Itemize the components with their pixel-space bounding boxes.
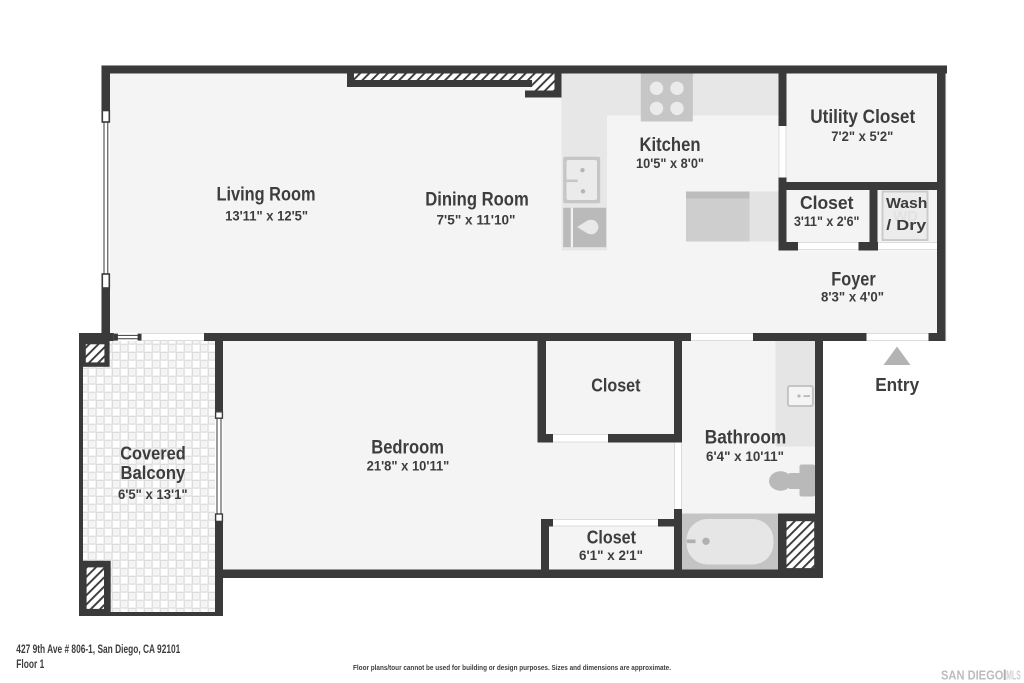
svg-text:Wash: Wash bbox=[886, 195, 927, 212]
svg-text:Floor 1: Floor 1 bbox=[16, 659, 44, 671]
svg-text:Closet: Closet bbox=[591, 376, 640, 396]
svg-text:SAN DIEGO: SAN DIEGO bbox=[941, 669, 1004, 683]
svg-text:427 9th Ave # 806-1, San Diego: 427 9th Ave # 806-1, San Diego, CA 92101 bbox=[16, 644, 180, 656]
svg-text:/ Dry: / Dry bbox=[886, 217, 927, 234]
svg-text:7'5" x 11'10": 7'5" x 11'10" bbox=[437, 212, 516, 228]
svg-text:Floor plans/tour cannot be use: Floor plans/tour cannot be used for buil… bbox=[353, 665, 671, 672]
svg-text:6'5" x 13'1": 6'5" x 13'1" bbox=[118, 486, 188, 502]
svg-text:Foyer: Foyer bbox=[831, 270, 876, 291]
svg-text:3'11" x 2'6": 3'11" x 2'6" bbox=[794, 213, 860, 229]
svg-text:8'3" x 4'0": 8'3" x 4'0" bbox=[821, 289, 884, 305]
svg-text:Living Room: Living Room bbox=[217, 185, 316, 206]
svg-text:21'8" x 10'11": 21'8" x 10'11" bbox=[367, 458, 450, 474]
svg-text:Dining Room: Dining Room bbox=[425, 190, 529, 211]
svg-text:Covered: Covered bbox=[120, 444, 186, 464]
svg-text:Utility Closet: Utility Closet bbox=[810, 107, 916, 128]
svg-text:Bathroom: Bathroom bbox=[705, 428, 787, 449]
svg-text:10'5" x 8'0": 10'5" x 8'0" bbox=[636, 155, 704, 171]
svg-text:Kitchen: Kitchen bbox=[640, 135, 701, 156]
svg-text:MLS: MLS bbox=[1006, 669, 1021, 683]
svg-text:Balcony: Balcony bbox=[121, 463, 186, 483]
svg-text:7'2" x 5'2": 7'2" x 5'2" bbox=[831, 128, 893, 144]
svg-text:Entry: Entry bbox=[875, 375, 919, 395]
svg-text:6'1" x 2'1": 6'1" x 2'1" bbox=[579, 547, 643, 563]
svg-text:Closet: Closet bbox=[800, 193, 854, 213]
svg-text:Bedroom: Bedroom bbox=[371, 438, 444, 459]
svg-text:13'11" x 12'5": 13'11" x 12'5" bbox=[225, 208, 308, 224]
svg-text:6'4" x 10'11": 6'4" x 10'11" bbox=[706, 448, 784, 464]
svg-text:Closet: Closet bbox=[587, 527, 636, 547]
